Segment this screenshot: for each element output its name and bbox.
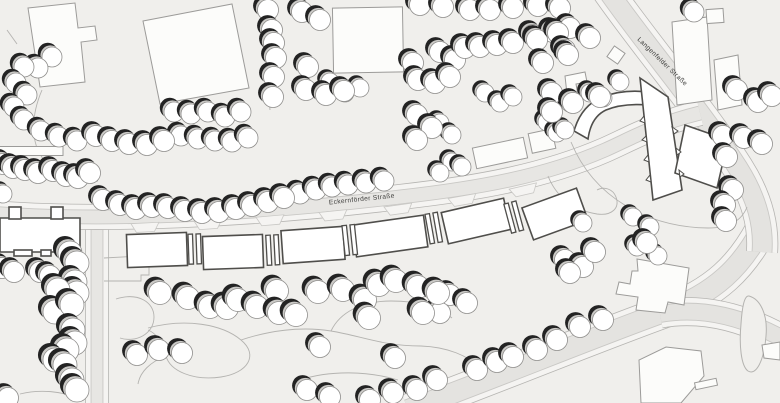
tree-crown <box>716 211 737 232</box>
tree-crown <box>310 337 331 358</box>
connector-bar <box>188 234 194 264</box>
tree-crown <box>611 73 629 91</box>
site-plan: Eckernförder StraßeLangenfelder Straße <box>0 0 780 403</box>
tree-crown <box>533 53 554 74</box>
tree-crown <box>263 87 284 108</box>
tree-crown <box>563 93 584 114</box>
tree-crown <box>503 347 524 368</box>
tree-crown <box>547 330 568 351</box>
tree-crown <box>443 126 461 144</box>
tree-crown <box>440 67 461 88</box>
tree-crown <box>238 128 258 148</box>
tree-crown <box>570 317 591 338</box>
tree-crown <box>457 293 478 314</box>
tree-crown <box>433 0 454 18</box>
tree-crown <box>717 147 738 168</box>
site-plan-svg: Eckernförder StraßeLangenfelder Straße <box>0 0 780 403</box>
tree-crown <box>80 163 101 184</box>
tree-crown <box>762 86 780 107</box>
tree-crown <box>637 233 658 254</box>
tree-crown <box>310 10 331 31</box>
tree-crown <box>149 282 172 305</box>
connector-bar <box>274 235 280 265</box>
tree-crown <box>307 281 330 304</box>
tree-crown <box>684 2 704 22</box>
building-heavy <box>14 250 32 256</box>
tree-crown <box>752 134 773 155</box>
building-light <box>143 4 249 104</box>
tree-crown <box>574 214 592 232</box>
building-heavy <box>202 234 263 269</box>
tree-crown <box>504 88 522 106</box>
tree-crown <box>590 87 611 108</box>
tree-crown <box>334 81 355 102</box>
tree-crown <box>65 378 89 402</box>
tree-crown <box>558 45 579 66</box>
tree-crown <box>60 293 84 317</box>
building-light <box>706 8 724 23</box>
building-heavy <box>281 226 345 263</box>
tree-crown <box>274 188 295 209</box>
tree-crown <box>412 302 435 325</box>
tree-crown <box>149 340 170 361</box>
tree-crown <box>231 102 251 122</box>
tree-crown <box>585 242 606 263</box>
tree-crown <box>427 370 448 391</box>
tree-crown <box>383 383 404 403</box>
tree-crown <box>407 380 428 401</box>
building-heavy <box>41 250 51 256</box>
building-light <box>672 17 712 105</box>
tree-crown <box>556 121 574 139</box>
tree-crown <box>427 282 450 305</box>
tree-crown <box>431 164 449 182</box>
tree-crown <box>4 262 25 283</box>
tree-crown <box>374 171 394 191</box>
building-heavy <box>126 232 187 267</box>
tree-crown <box>527 340 548 361</box>
tree-crown <box>358 307 381 330</box>
connector-bar <box>266 235 272 265</box>
tree-crown <box>297 380 318 401</box>
tree-crown <box>285 304 308 327</box>
connector-bar <box>196 234 202 264</box>
tree-crown <box>580 28 601 49</box>
tree-crown <box>453 158 471 176</box>
building-heavy <box>51 207 63 219</box>
building-light <box>762 342 780 360</box>
tree-crown <box>542 102 563 123</box>
tree-crown <box>560 263 581 284</box>
building-light <box>332 7 403 73</box>
tree-crown <box>385 348 406 369</box>
tree-crown <box>407 130 428 151</box>
tree-crown <box>154 131 175 152</box>
tree-crown <box>593 310 614 331</box>
tree-crown <box>298 57 319 78</box>
tree-crown <box>480 0 501 21</box>
tree-crown <box>503 0 524 19</box>
tree-crown <box>320 387 341 403</box>
tree-crown <box>172 343 193 364</box>
building-heavy <box>9 207 21 219</box>
